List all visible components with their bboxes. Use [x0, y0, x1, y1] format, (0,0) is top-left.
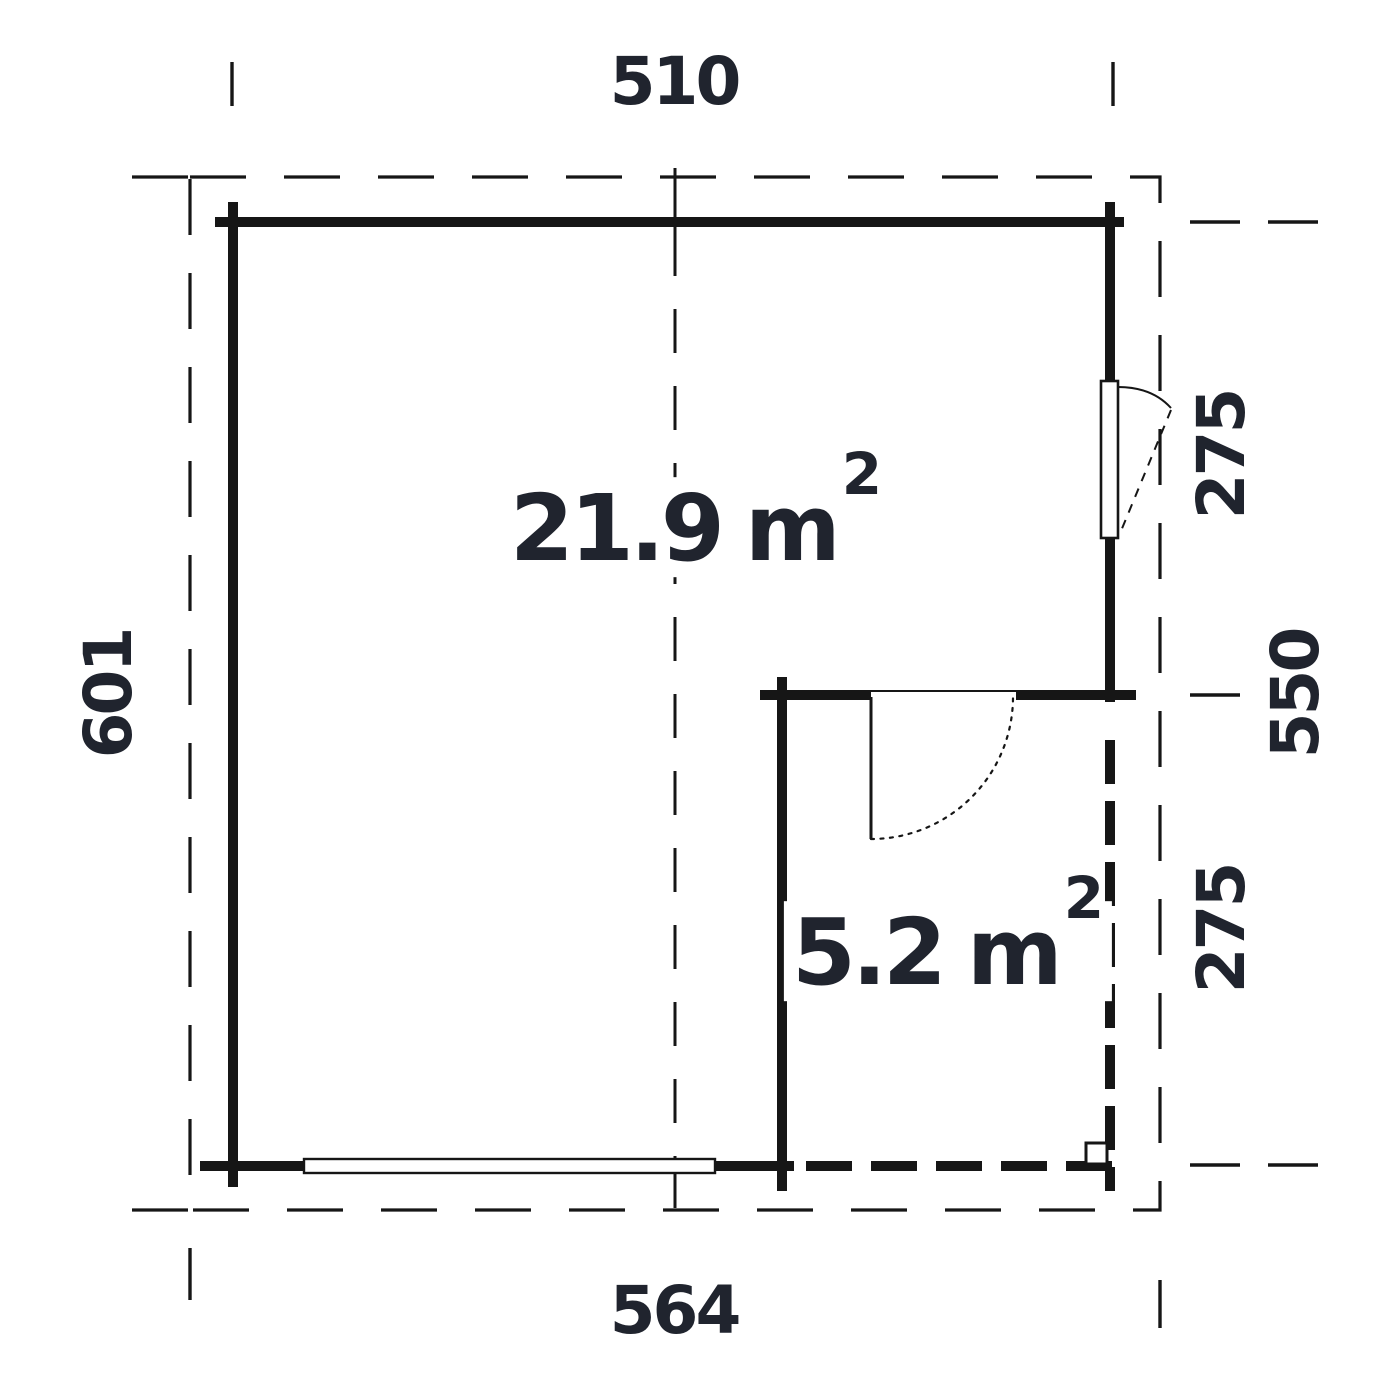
- room-area-main: 21.9m2: [502, 477, 890, 577]
- dim-left-height: 601: [76, 630, 142, 759]
- interior-door: [871, 691, 1016, 839]
- room-area-annex-exponent: 2: [1064, 864, 1104, 932]
- dim-right-upper: 275: [1189, 391, 1255, 520]
- dimension-extension-marks: [190, 62, 1318, 1328]
- room-area-annex: 5.2m2: [784, 901, 1112, 1001]
- floor-plan-canvas: 510 601 275 550 275 564 21.9m2 5.2m2: [0, 0, 1400, 1400]
- room-area-annex-unit: m: [967, 899, 1059, 1006]
- door-swing-arc: [871, 697, 1013, 839]
- room-area-main-exponent: 2: [842, 440, 882, 508]
- dim-right-lower: 275: [1189, 865, 1255, 994]
- dim-right-total: 550: [1263, 630, 1329, 759]
- dim-top-width: 510: [610, 49, 739, 115]
- dim-bottom-width: 564: [610, 1278, 739, 1344]
- window-swing-line-dashed: [1121, 410, 1171, 531]
- floor-plan-drawing: [0, 0, 1400, 1400]
- window-frame: [1101, 381, 1118, 538]
- room-area-main-value: 21.9: [510, 475, 721, 582]
- corner-post: [1086, 1143, 1107, 1164]
- window-swing-line-solid: [1118, 387, 1171, 408]
- room-area-annex-value: 5.2: [792, 899, 943, 1006]
- garage-door: [304, 1159, 715, 1173]
- roof-overhang-outline: [96, 177, 1160, 1210]
- room-area-main-unit: m: [745, 475, 837, 582]
- exterior-walls: [200, 202, 1124, 1191]
